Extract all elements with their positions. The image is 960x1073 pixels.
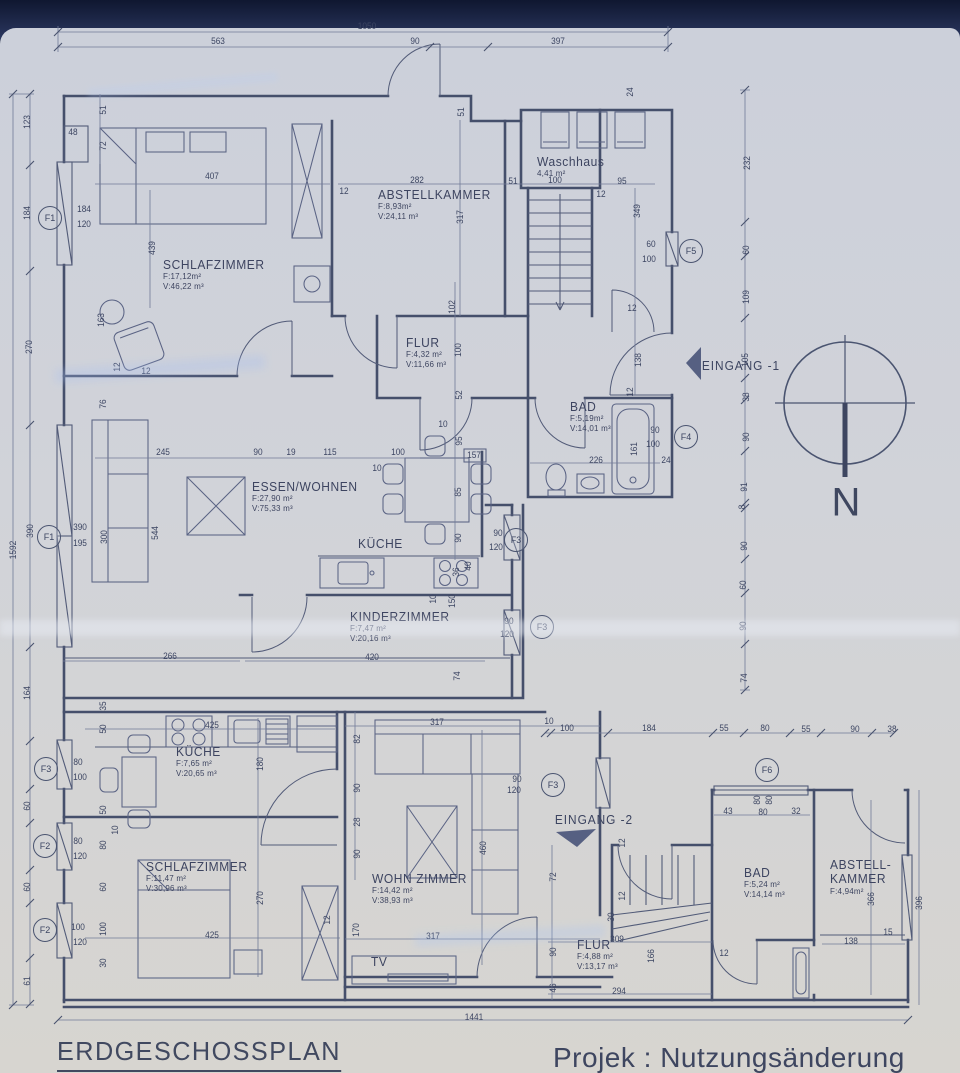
dimension-label: 90: [650, 425, 659, 435]
dimension-label: 24: [661, 455, 670, 465]
dimension-label: 138: [633, 353, 643, 367]
dimension-label: 95: [454, 436, 464, 445]
dimension-label: 90: [512, 774, 521, 784]
dimension-label: 425: [205, 720, 219, 730]
window-tag-f3: F3: [541, 773, 565, 797]
dimension-label: 72: [98, 141, 108, 150]
dimension-label: 80: [760, 723, 769, 733]
dimension-label: 10: [438, 419, 447, 429]
dimension-label: 60: [22, 801, 32, 810]
dimension-label: 19: [286, 447, 295, 457]
dimension-label: 120: [73, 851, 87, 861]
dimension-label: 460: [478, 841, 488, 855]
dimension-label: 30: [98, 958, 108, 967]
dimension-label: 102: [447, 300, 457, 314]
dimension-label: 138: [844, 936, 858, 946]
dimension-label: 100: [391, 447, 405, 457]
dimension-label: 51: [508, 176, 517, 186]
room-label-k-che: KÜCHEF:7,65 m²V:20,65 m³: [176, 745, 223, 778]
dimension-label: 12: [141, 366, 150, 376]
dimension-label: 184: [77, 204, 91, 214]
dimension-label: 85: [453, 487, 463, 496]
dimension-label: 232: [742, 156, 752, 170]
dimension-label: 95: [617, 176, 626, 186]
dimension-label: 80: [752, 795, 762, 804]
dimension-label: 12: [617, 891, 627, 900]
dimension-label: 51: [456, 107, 466, 116]
dimension-label: 407: [205, 171, 219, 181]
dimension-label: 123: [22, 115, 32, 129]
door-symbols: [237, 44, 905, 984]
dimension-label: 30: [606, 912, 616, 921]
dimension-label: 180: [255, 757, 265, 771]
dimension-label: 300: [99, 530, 109, 544]
dimension-label: 80: [758, 807, 767, 817]
window-tag-f1: F1: [38, 206, 62, 230]
dimension-label: 80: [764, 795, 774, 804]
dimension-label: 120: [77, 219, 91, 229]
dimension-label: 38: [887, 724, 896, 734]
dimension-label: 563: [211, 36, 225, 46]
dimension-label: 100: [98, 922, 108, 936]
dimension-label: 12: [339, 186, 348, 196]
dimension-label: 48: [68, 127, 77, 137]
dimension-label: 46: [548, 983, 558, 992]
dimension-label: 396: [914, 896, 924, 910]
north-compass: [775, 335, 915, 477]
dimension-label: 100: [642, 254, 656, 264]
dimension-label: 397: [551, 36, 565, 46]
window-tag-f4: F4: [674, 425, 698, 449]
room-label-abstell-kammer: ABSTELL-KAMMERF:4,94m²: [830, 858, 894, 896]
dimension-label: 90: [352, 783, 362, 792]
dimension-label: 120: [73, 937, 87, 947]
dimension-label: 115: [323, 447, 336, 457]
dimension-label: 15: [883, 927, 892, 937]
dimension-label: 61: [22, 976, 32, 985]
dimension-label: 28: [352, 817, 362, 826]
dimension-label: 90: [738, 621, 748, 630]
window-tag-f1: F1: [37, 525, 61, 549]
dimension-label: 100: [646, 439, 660, 449]
dimension-label: 166: [646, 949, 656, 963]
dimension-label: 170: [351, 923, 361, 937]
dimension-label: 12: [627, 303, 636, 313]
dimension-label: 74: [452, 671, 462, 680]
dimension-label: 51: [98, 105, 108, 114]
dimension-label: 40: [463, 561, 473, 570]
dimension-label: 60: [738, 580, 748, 589]
dimension-label: 10: [544, 716, 553, 726]
dimension-label: 12: [625, 387, 635, 396]
room-label-schlafzimmer: SCHLAFZIMMERF:11,47 m²V:30,96 m³: [146, 860, 252, 893]
dimension-label: 8: [737, 505, 747, 510]
dimension-label: 390: [73, 522, 87, 532]
dimension-label: 60: [22, 882, 32, 891]
staircase-upper: [528, 194, 592, 310]
dimension-label: 90: [739, 541, 749, 550]
dimension-label: 90: [741, 432, 751, 441]
dimension-label: 317: [426, 931, 440, 941]
staircase-lower: [612, 855, 712, 941]
window-tag-f3: F3: [504, 528, 528, 552]
dimension-label: 100: [73, 772, 87, 782]
dimension-label: 55: [719, 723, 728, 733]
dimension-label: 74: [739, 673, 749, 682]
dimension-label: 425: [205, 930, 219, 940]
dimension-label: 10: [110, 825, 120, 834]
dimension-label: 90: [253, 447, 262, 457]
dimension-label: 50: [98, 805, 108, 814]
dimension-label: 52: [454, 390, 464, 399]
dimension-label: 184: [642, 723, 656, 733]
eingang-1-arrow-icon: [686, 347, 701, 380]
dimension-label: 76: [98, 399, 108, 408]
room-label-k-che: KÜCHE: [358, 537, 405, 551]
dimension-label: 195: [73, 538, 87, 548]
dimension-label: 90: [850, 724, 859, 734]
window-tag-f3: F3: [34, 757, 58, 781]
dimension-label: 184: [22, 206, 32, 220]
dimension-label: 55: [801, 724, 810, 734]
dimension-label: 1441: [465, 1012, 483, 1022]
dimension-label: 164: [22, 686, 32, 700]
dimension-label: 35: [98, 701, 108, 710]
room-label-abstellkammer: ABSTELLKAMMERF:8,93m²V:24,11 m³: [378, 188, 496, 221]
dimension-label: 317: [430, 717, 444, 727]
floor-plan-photo: 1050563903971231842701592390164606061184…: [0, 0, 960, 1073]
dimension-label: 1050: [358, 21, 376, 31]
room-label-waschhaus: Waschhaus4,41 m²: [537, 155, 607, 179]
room-label-wohn-zimmer: WOHN ZIMMERF:14,42 m²V:38,93 m³: [372, 872, 471, 905]
dimension-label: 12: [322, 915, 332, 924]
dimension-label: 10: [428, 594, 438, 603]
dimension-label: 12: [596, 189, 605, 199]
north-letter: N: [832, 481, 861, 526]
dimension-label: 12: [617, 838, 627, 847]
dimension-label: 349: [632, 204, 642, 218]
dimension-label: 120: [500, 629, 514, 639]
project-caption: Projek : Nutzungsänderung: [553, 1042, 905, 1073]
dimension-label: 50: [98, 724, 108, 733]
dimension-label: 91: [739, 482, 749, 491]
room-label-bad: BADF:5,19m²V:14,01 m³: [570, 400, 611, 433]
plan-linework: [0, 0, 960, 1073]
dimension-label: 32: [791, 806, 800, 816]
dimension-label: 82: [352, 734, 362, 743]
window-tag-f6: F6: [755, 758, 779, 782]
dimension-label: 36: [451, 567, 461, 576]
dimension-label: 544: [150, 526, 160, 540]
dimension-label: 294: [612, 986, 626, 996]
dimension-label: 90: [548, 947, 558, 956]
dimension-label: 12: [112, 362, 122, 371]
dimension-label: 10: [372, 463, 381, 473]
window-tag-f2: F2: [33, 834, 57, 858]
dimension-label: 270: [255, 891, 265, 905]
entrance-label-eingang-1: EINGANG -1: [702, 359, 780, 373]
room-label-bad: BADF:5,24 m²V:14,14 m³: [744, 866, 785, 899]
dimension-label: 90: [352, 849, 362, 858]
dimension-label: 80: [73, 836, 82, 846]
dimension-label: 90: [453, 533, 463, 542]
dimension-label: 80: [73, 757, 82, 767]
dimension-label: 390: [25, 524, 35, 538]
dimension-label: 60: [98, 882, 108, 891]
dimension-label: 60: [741, 245, 751, 254]
dimension-label: 38: [741, 392, 751, 401]
dimension-label: 90: [504, 616, 513, 626]
dimension-label: 43: [723, 806, 732, 816]
window-tag-f5: F5: [679, 239, 703, 263]
room-label-tv: TV: [371, 955, 388, 969]
dimension-label: 90: [410, 36, 419, 46]
dimension-label: 226: [589, 455, 603, 465]
room-label-essen-wohnen: ESSEN/WOHNENF:27,90 m²V:75,33 m³: [252, 480, 362, 513]
dimension-label: 24: [625, 87, 635, 96]
dimension-label: 420: [365, 652, 379, 662]
room-label-flur: FLURF:4,88 m²V:13,17 m³: [577, 938, 618, 971]
dimension-label: 150: [447, 594, 457, 608]
dimension-label: 270: [24, 340, 34, 354]
dimension-label: 120: [489, 542, 503, 552]
dimension-label: 100: [71, 922, 85, 932]
room-label-flur: FLURF:4,32 m²V:11,66 m³: [406, 336, 446, 369]
dimension-label: 120: [507, 785, 521, 795]
window-symbols: [57, 126, 912, 958]
dimension-label: 439: [147, 241, 157, 255]
dimension-label: 161: [629, 442, 639, 456]
room-label-schlafzimmer: SCHLAFZIMMERF:17,12m²V:46,22 m³: [163, 258, 269, 291]
dimension-label: 245: [156, 447, 170, 457]
eingang-2-arrow-icon: [556, 829, 596, 847]
room-label-kinderzimmer: KINDERZIMMERF:7,47 m²V:20,16 m³: [350, 610, 454, 643]
dimension-label: 163: [96, 313, 106, 327]
dimension-label: 72: [548, 872, 558, 881]
dimension-label: 157: [467, 450, 481, 460]
window-tag-f3: F3: [530, 615, 554, 639]
entrance-label-eingang-2: EINGANG -2: [555, 813, 633, 827]
dimension-label: 60: [646, 239, 655, 249]
dimension-label: 100: [560, 723, 574, 733]
dimension-label: 12: [719, 948, 728, 958]
dimension-label: 109: [741, 290, 751, 304]
dimension-label: 266: [163, 651, 177, 661]
dimension-label: 282: [410, 175, 424, 185]
dimension-label: 90: [493, 528, 502, 538]
window-tag-f2: F2: [33, 918, 57, 942]
dimension-label: 80: [98, 840, 108, 849]
dimension-label: 1592: [8, 541, 18, 559]
plan-title: ERDGESCHOSSPLAN: [57, 1036, 341, 1072]
dimension-label: 100: [453, 343, 463, 357]
